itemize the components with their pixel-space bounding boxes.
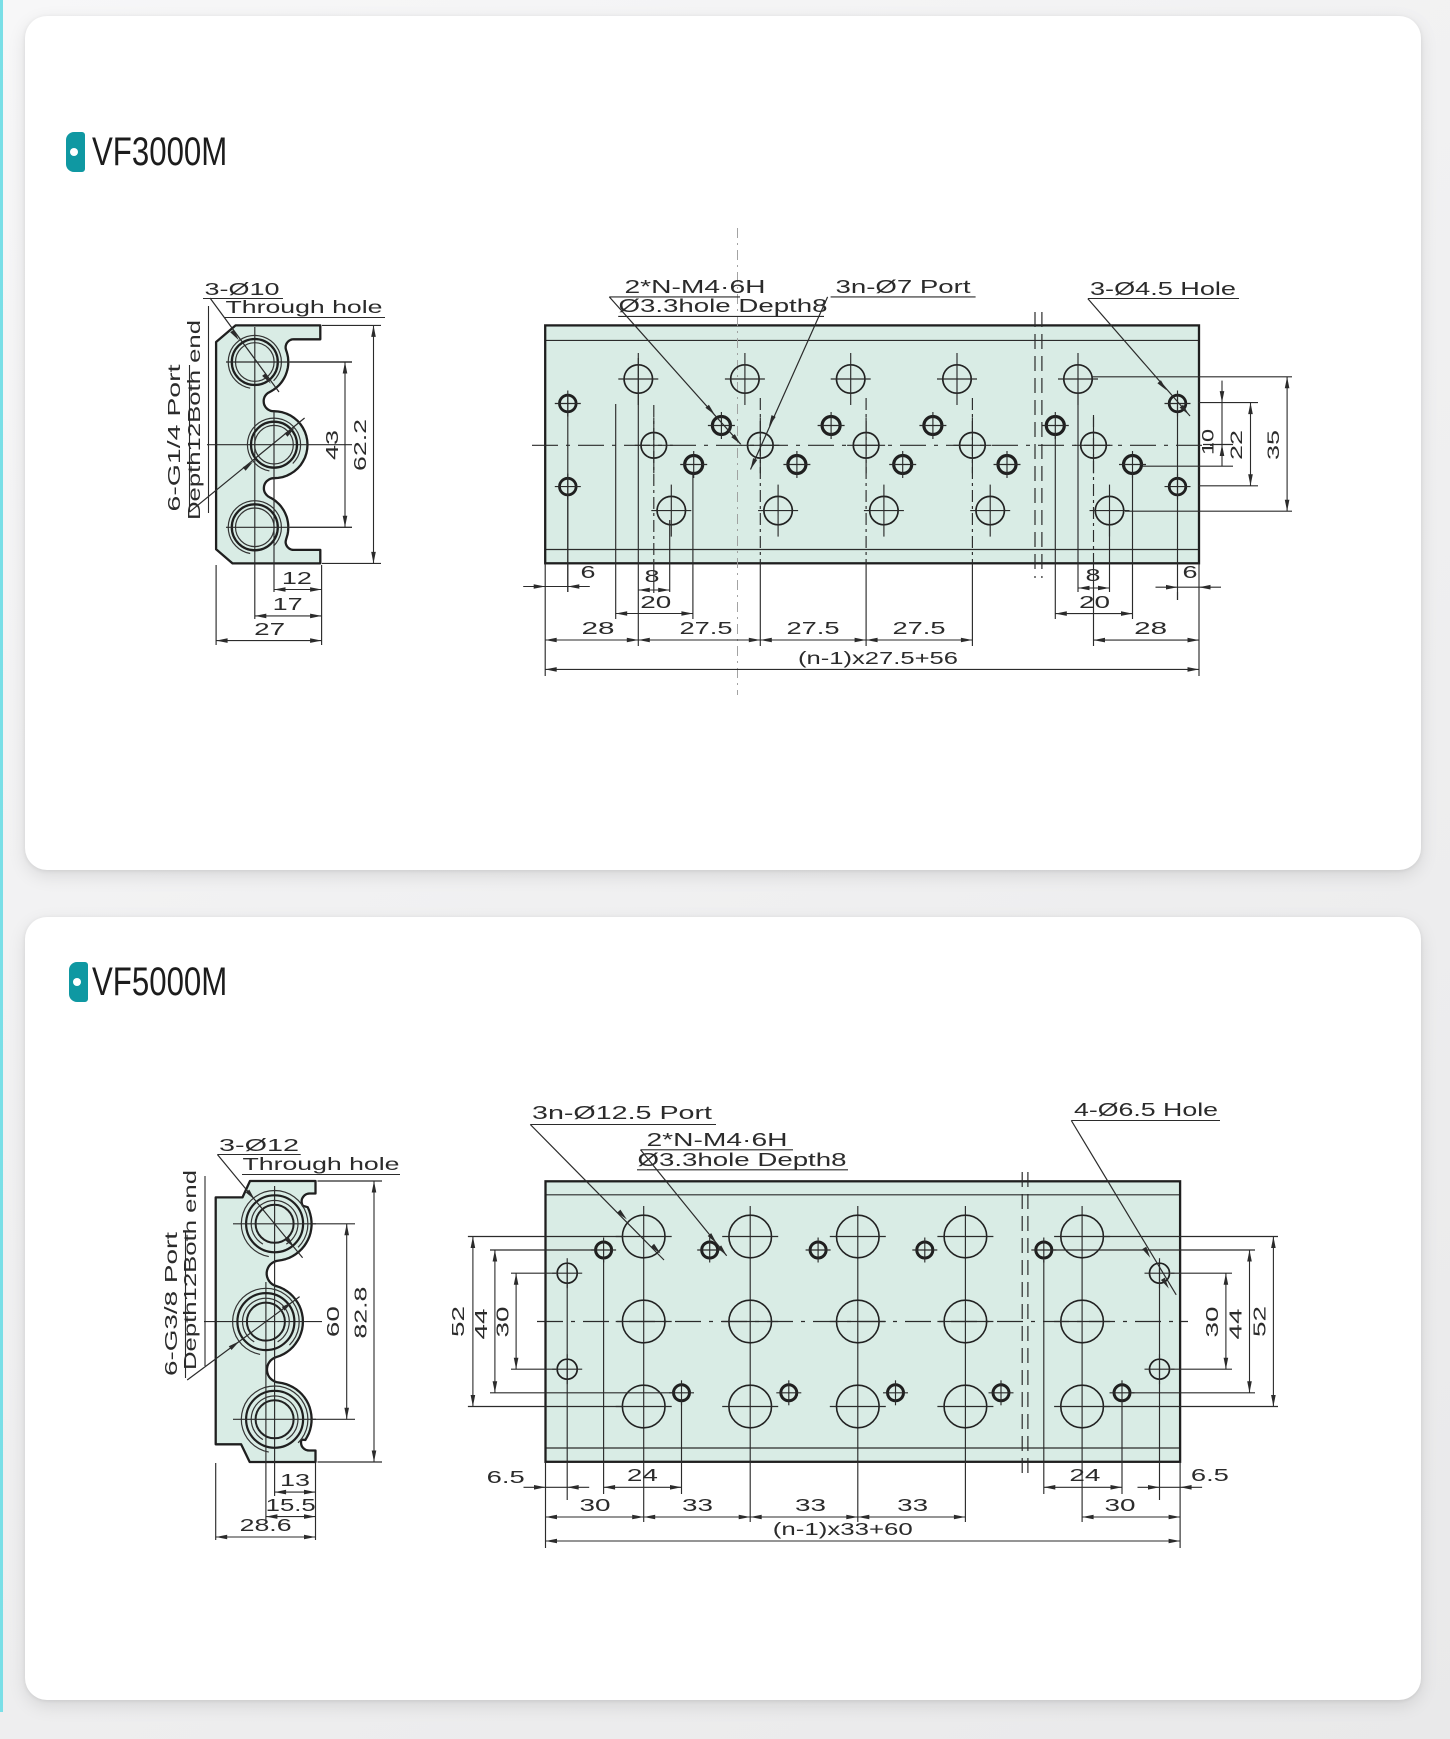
svg-text:Through hole: Through hole	[243, 1154, 400, 1174]
svg-text:22: 22	[1228, 430, 1246, 460]
svg-text:17: 17	[273, 594, 303, 614]
svg-text:3n-Ø12.5 Port: 3n-Ø12.5 Port	[532, 1103, 712, 1123]
svg-text:3-Ø10: 3-Ø10	[205, 279, 280, 299]
svg-text:(n-1)x33+60: (n-1)x33+60	[773, 1519, 913, 1539]
svg-text:3-Ø4.5 Hole: 3-Ø4.5 Hole	[1090, 279, 1236, 299]
svg-text:Depth12Both end: Depth12Both end	[184, 320, 204, 520]
svg-text:28: 28	[582, 618, 615, 638]
svg-text:27.5: 27.5	[787, 618, 840, 638]
svg-text:Ø3.3hole Depth8: Ø3.3hole Depth8	[619, 296, 828, 316]
svg-text:Through hole: Through hole	[226, 297, 383, 317]
svg-text:8: 8	[645, 566, 660, 586]
svg-text:6: 6	[581, 562, 596, 582]
svg-text:20: 20	[640, 592, 671, 612]
svg-text:28.6: 28.6	[240, 1515, 292, 1535]
svg-text:33: 33	[682, 1495, 713, 1515]
svg-text:6.5: 6.5	[1191, 1465, 1229, 1485]
svg-text:24: 24	[1069, 1465, 1100, 1485]
svg-text:3-Ø12: 3-Ø12	[219, 1135, 299, 1155]
svg-text:27.5: 27.5	[680, 618, 733, 638]
svg-text:2*N-M4·6H: 2*N-M4·6H	[625, 277, 766, 297]
svg-text:10: 10	[1200, 429, 1218, 455]
svg-text:30: 30	[493, 1306, 513, 1337]
svg-text:82.8: 82.8	[351, 1287, 371, 1339]
svg-text:60: 60	[323, 1306, 343, 1337]
svg-text:20: 20	[1079, 592, 1110, 612]
svg-text:62.2: 62.2	[350, 419, 370, 471]
svg-text:6.5: 6.5	[487, 1467, 525, 1487]
svg-text:15.5: 15.5	[266, 1495, 316, 1515]
svg-text:(n-1)x27.5+56: (n-1)x27.5+56	[798, 648, 958, 668]
svg-text:3n-Ø7 Port: 3n-Ø7 Port	[836, 277, 971, 297]
svg-text:44: 44	[1226, 1308, 1246, 1339]
svg-text:12: 12	[282, 568, 312, 588]
svg-text:52: 52	[1250, 1306, 1270, 1337]
svg-text:43: 43	[322, 430, 342, 460]
svg-text:30: 30	[1105, 1495, 1136, 1515]
svg-text:8: 8	[1086, 565, 1101, 585]
svg-text:44: 44	[471, 1308, 491, 1339]
svg-text:2*N-M4·6H: 2*N-M4·6H	[647, 1130, 788, 1150]
svg-text:Depth12Both end: Depth12Both end	[180, 1170, 200, 1370]
svg-text:6: 6	[1183, 562, 1198, 582]
svg-text:13: 13	[280, 1470, 310, 1490]
svg-text:30: 30	[1202, 1306, 1222, 1337]
svg-text:35: 35	[1265, 430, 1283, 460]
svg-text:28: 28	[1134, 618, 1167, 638]
svg-text:33: 33	[795, 1495, 826, 1515]
svg-text:6-G1/4 Port: 6-G1/4 Port	[164, 364, 184, 511]
svg-text:27.5: 27.5	[893, 618, 946, 638]
svg-text:6-G3/8 Port: 6-G3/8 Port	[161, 1232, 181, 1376]
svg-text:52: 52	[448, 1306, 468, 1337]
svg-text:27: 27	[254, 619, 285, 639]
svg-text:4-Ø6.5 Hole: 4-Ø6.5 Hole	[1074, 1100, 1218, 1120]
svg-text:Ø3.3hole Depth8: Ø3.3hole Depth8	[638, 1150, 847, 1170]
svg-text:30: 30	[580, 1495, 611, 1515]
svg-text:24: 24	[627, 1465, 658, 1485]
svg-text:33: 33	[897, 1495, 928, 1515]
